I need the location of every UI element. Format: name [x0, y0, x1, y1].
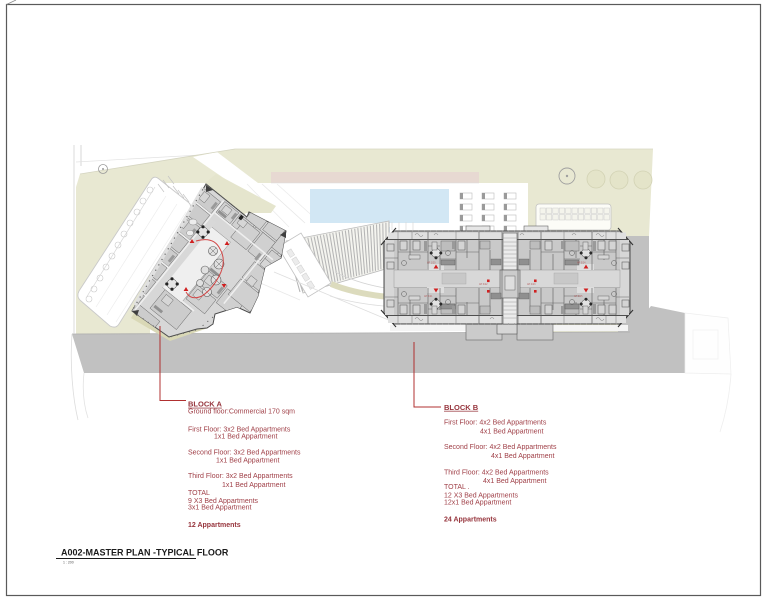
svg-text:1 : 200: 1 : 200: [63, 561, 74, 565]
svg-text:TOTAL .: TOTAL .: [444, 484, 470, 491]
svg-text:3x1 Bed Appartment: 3x1 Bed Appartment: [188, 504, 251, 511]
svg-text:Third Floor: 4x2 Bed Appartmen: Third Floor: 4x2 Bed Appartments: [444, 469, 549, 476]
svg-text:AP 2/21: AP 2/21: [424, 295, 433, 298]
svg-text:First Floor: 3x2 Bed Appartmen: First Floor: 3x2 Bed Appartments: [188, 426, 291, 433]
svg-text:1x1 Bed Appartment: 1x1 Bed Appartment: [222, 482, 285, 489]
svg-text:24 Appartments: 24 Appartments: [444, 516, 497, 523]
svg-text:12x1 Bed Appartment: 12x1 Bed Appartment: [444, 499, 511, 506]
svg-text:Third Floor: 3x2 Bed Appartmen: Third Floor: 3x2 Bed Appartments: [188, 473, 293, 480]
svg-text:BLOCK B: BLOCK B: [444, 403, 479, 412]
svg-text:AP 6/25: AP 6/25: [574, 295, 583, 298]
svg-text:A002-MASTER PLAN -TYPICAL FLOO: A002-MASTER PLAN -TYPICAL FLOOR: [61, 548, 229, 558]
svg-text:1x1 Bed Appartment: 1x1 Bed Appartment: [216, 458, 279, 465]
svg-text:12 Appartments: 12 Appartments: [188, 522, 241, 529]
svg-text:Second Floor: 4x2 Bed Appartme: Second Floor: 4x2 Bed Appartments: [444, 444, 557, 451]
svg-text:Second Floor: 3x2 Bed Appartme: Second Floor: 3x2 Bed Appartments: [188, 450, 301, 457]
svg-text:Ground floor:Commercial 170 sq: Ground floor:Commercial 170 sqm: [188, 408, 295, 415]
svg-text:4x1 Bed Appartment: 4x1 Bed Appartment: [480, 428, 543, 435]
svg-text:First Floor: 4x2 Bed Appartmen: First Floor: 4x2 Bed Appartments: [444, 420, 547, 427]
svg-text:4x1 Bed Appartment: 4x1 Bed Appartment: [483, 478, 546, 485]
svg-text:AP 1/20: AP 1/20: [427, 262, 436, 265]
svg-text:4x1 Bed Appartment: 4x1 Bed Appartment: [491, 453, 554, 460]
svg-text:1x1 Bed Appartment: 1x1 Bed Appartment: [214, 433, 277, 440]
svg-text:AP 3/22: AP 3/22: [479, 283, 488, 286]
svg-text:AP 4/23: AP 4/23: [527, 283, 536, 286]
svg-text:AP 5/24: AP 5/24: [577, 262, 586, 265]
svg-text:TOTAL: TOTAL: [188, 490, 210, 497]
